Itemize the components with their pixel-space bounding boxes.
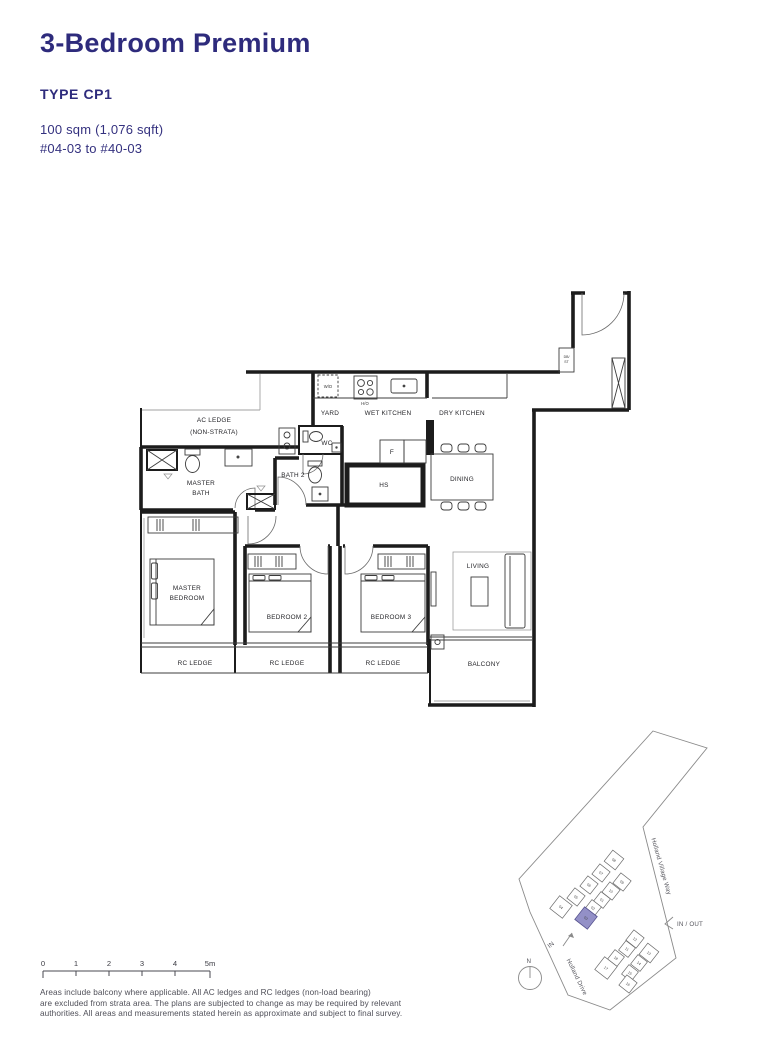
coffee-table-icon <box>471 577 488 606</box>
floor-plan-page: 3-Bedroom Premium TYPE CP1 100 sqm (1,07… <box>0 0 768 1054</box>
label-dry-kitchen: DRY KITCHEN <box>439 410 485 417</box>
svg-text:(NON-STRATA): (NON-STRATA) <box>190 429 238 436</box>
in-out-label: IN / OUT <box>677 921 703 928</box>
disclaimer-text: Areas include balcony where applicable. … <box>40 988 402 1020</box>
bed-icon <box>249 574 311 632</box>
label-living: LIVING <box>467 563 489 570</box>
label-rc-ledge-1: RC LEDGE <box>178 660 213 667</box>
sofa-icon <box>505 554 525 628</box>
label-rc-ledge-2: RC LEDGE <box>270 660 305 667</box>
scale-bar: 0 1 2 3 4 5m <box>38 952 238 982</box>
site-lower-tower: 12 11 13 18 14 17 15 16 <box>595 930 659 993</box>
svg-text:1: 1 <box>74 959 78 968</box>
svg-text:5m: 5m <box>205 959 216 968</box>
unit-stack-range: #04-03 to #40-03 <box>40 139 163 158</box>
bed-icon <box>361 574 425 632</box>
label-bath2: BATH 2 <box>281 472 305 479</box>
north-compass-icon: N <box>519 958 542 990</box>
kitchen-counter <box>313 374 507 399</box>
svg-text:BATH: BATH <box>192 490 210 497</box>
svg-text:3: 3 <box>140 959 144 968</box>
ac-ledge-boundary <box>141 374 260 447</box>
label-bedroom3: BEDROOM 3 <box>371 614 412 621</box>
svg-text:4: 4 <box>173 959 177 968</box>
corridor-ac-ledge-icon <box>247 486 275 509</box>
floor-plan: AC LEDGE (NON-STRATA) YARD WET KITCHEN D… <box>135 278 640 718</box>
road-holland-drive: Holland Drive <box>565 958 589 997</box>
label-wet-kitchen: WET KITCHEN <box>365 410 412 417</box>
entry-foyer <box>559 293 625 408</box>
svg-text:BEDROOM: BEDROOM <box>170 595 205 602</box>
svg-text:2: 2 <box>107 959 111 968</box>
label-fridge: F <box>390 449 394 456</box>
svg-text:0: 0 <box>41 959 45 968</box>
entry-door-icon <box>582 293 624 335</box>
in-label: IN <box>546 940 556 950</box>
toilet-icon <box>303 431 308 442</box>
unit-type: TYPE CP1 <box>40 86 113 102</box>
label-dining: DINING <box>450 476 474 483</box>
label-bedroom2: BEDROOM 2 <box>267 614 308 621</box>
label-ac-ledge: AC LEDGE <box>197 417 231 424</box>
page-title: 3-Bedroom Premium <box>40 28 311 59</box>
tv-console-icon <box>431 572 436 606</box>
label-wd: W/D <box>324 384 332 389</box>
svg-text:ST: ST <box>564 360 569 364</box>
label-ho: H/O <box>361 401 369 406</box>
room-wc <box>279 426 342 474</box>
label-master-bath: MASTER <box>187 480 215 487</box>
label-db: DB/ <box>564 355 570 359</box>
unit-meta: 100 sqm (1,076 sqft) #04-03 to #40-03 <box>40 120 163 158</box>
room-master-bedroom <box>148 517 238 625</box>
label-balcony: BALCONY <box>468 661 501 668</box>
bed-icon <box>150 559 214 625</box>
north-label: N <box>527 958 532 965</box>
unit-area: 100 sqm (1,076 sqft) <box>40 120 163 139</box>
room-master-bath <box>147 449 255 508</box>
site-plan: 08 07 06 05 04 09 10 01 02 03 12 11 13 1… <box>511 727 767 1023</box>
label-master-bedroom: MASTER <box>173 585 201 592</box>
structural-walls <box>141 291 629 707</box>
label-yard: YARD <box>321 410 339 417</box>
fridge-icon <box>380 440 426 463</box>
hob-icon <box>354 376 377 399</box>
label-rc-ledge-3: RC LEDGE <box>366 660 401 667</box>
site-upper-tower: 08 07 06 05 04 09 10 01 02 03 <box>550 850 631 929</box>
label-hs: HS <box>379 482 388 489</box>
in-arrow-icon <box>563 933 574 946</box>
toilet-icon <box>185 449 200 455</box>
label-wc: WC <box>321 440 332 447</box>
